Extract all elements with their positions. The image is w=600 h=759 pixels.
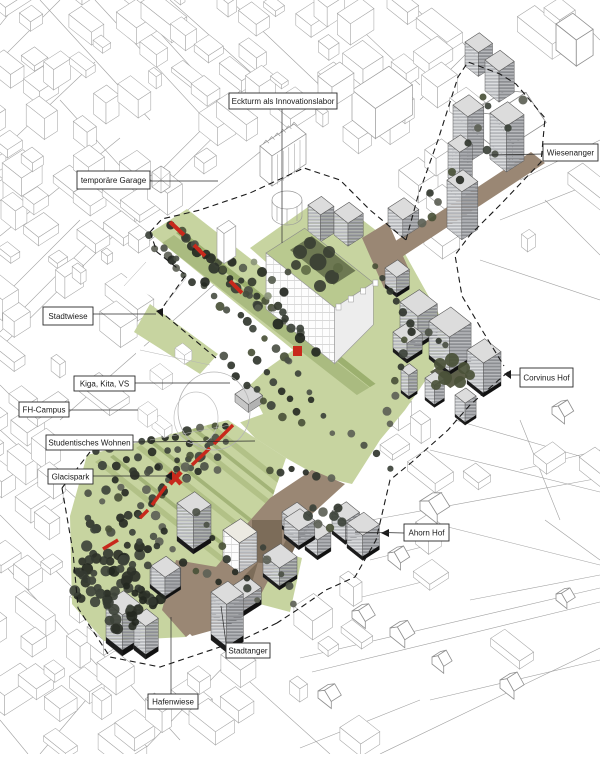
svg-text:Corvinus Hof: Corvinus Hof — [523, 374, 570, 383]
svg-text:temporäre Garage: temporäre Garage — [81, 176, 147, 185]
svg-text:Studentisches Wohnen: Studentisches Wohnen — [48, 439, 130, 448]
svg-text:FH-Campus: FH-Campus — [22, 406, 65, 415]
svg-text:Stadtanger: Stadtanger — [228, 647, 267, 656]
svg-text:Kiga, Kita, VS: Kiga, Kita, VS — [80, 380, 129, 389]
svg-text:Glacispark: Glacispark — [52, 473, 91, 482]
svg-text:Stadtwiese: Stadtwiese — [48, 312, 88, 321]
svg-text:Wiesenanger: Wiesenanger — [547, 149, 594, 158]
svg-text:Ahorn Hof: Ahorn Hof — [408, 529, 445, 538]
svg-text:Hafenwiese: Hafenwiese — [152, 698, 194, 707]
svg-text:Eckturm als Innovationslabor: Eckturm als Innovationslabor — [232, 97, 335, 106]
